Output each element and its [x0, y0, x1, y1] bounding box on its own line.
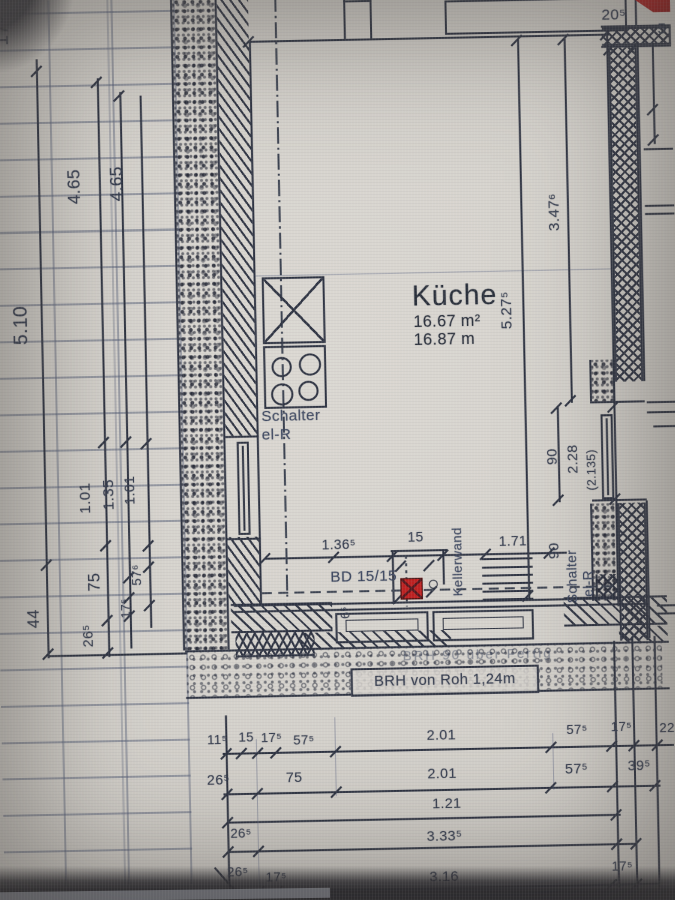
dimension-label: 17⁵	[119, 598, 132, 618]
dimension-label: 20⁵	[601, 7, 626, 23]
dimension-label: 57⁶	[130, 564, 144, 586]
dimension-label: 44	[26, 609, 43, 628]
dimension-label: 39⁵	[628, 758, 651, 773]
dimension-label: 5.27⁵	[499, 291, 515, 329]
dimension-label: 1.01	[122, 475, 137, 504]
dimension-label: (2.135)	[585, 449, 598, 491]
dimension-label: 17⁵	[265, 870, 287, 884]
floor-plan: Küche 16.67 m² 16.87 m Schalter el-R BD …	[0, 0, 675, 900]
dimension-label: 5.10	[11, 306, 31, 345]
dimension-label: 1.71	[499, 534, 527, 548]
dimension-label: 11⁵	[207, 733, 228, 747]
dimension-label: 2.28	[565, 444, 580, 473]
dimension-label: 3.47⁶	[546, 193, 562, 231]
dimension-label: 17⁵	[611, 859, 633, 873]
dimension-label: 75	[286, 770, 303, 784]
dimension-label: 4.65	[108, 166, 126, 201]
dimension-label: 57⁵	[566, 722, 588, 736]
dimension-labels: 17⁵4.654.655.101.011.351.017557⁶4426⁵17⁵…	[0, 0, 675, 900]
dimension-label: 15	[238, 730, 254, 743]
dimension-label: 90	[546, 542, 560, 559]
dimension-label: 26⁵	[227, 865, 249, 879]
dimension-label: 26⁵	[80, 624, 95, 647]
dimension-label: 1.35	[101, 479, 117, 510]
dimension-label: 3.16	[429, 869, 458, 884]
dimension-label: 5	[657, 21, 666, 36]
dimension-label: 17⁵	[0, 15, 12, 46]
dimension-label: 3.33⁵	[427, 828, 463, 843]
dimension-label: 15	[407, 530, 423, 544]
dimension-label: 22	[659, 721, 675, 734]
dimension-label: 26⁵	[207, 772, 230, 787]
dimension-label: 57⁵	[565, 761, 588, 776]
dimension-label: 17⁵	[261, 730, 283, 744]
dimension-label: 17⁵	[611, 719, 633, 733]
dimension-label: 75	[87, 573, 104, 592]
dimension-label: 4.65	[65, 169, 83, 204]
dimension-label: 2.01	[427, 727, 456, 742]
dimension-label: 1.36⁵	[322, 538, 357, 552]
dimension-label: 6⁵	[339, 606, 351, 619]
dimension-label: 2.01	[427, 765, 456, 780]
dimension-label: 57⁵	[293, 733, 315, 747]
dimension-label: 1.21	[432, 796, 461, 811]
dimension-label: 1.01	[78, 482, 94, 513]
floor-plan-photo: Küche 16.67 m² 16.87 m Schalter el-R BD …	[0, 0, 675, 900]
dimension-label: 90	[544, 448, 558, 465]
dimension-label: 26⁵	[230, 826, 252, 840]
